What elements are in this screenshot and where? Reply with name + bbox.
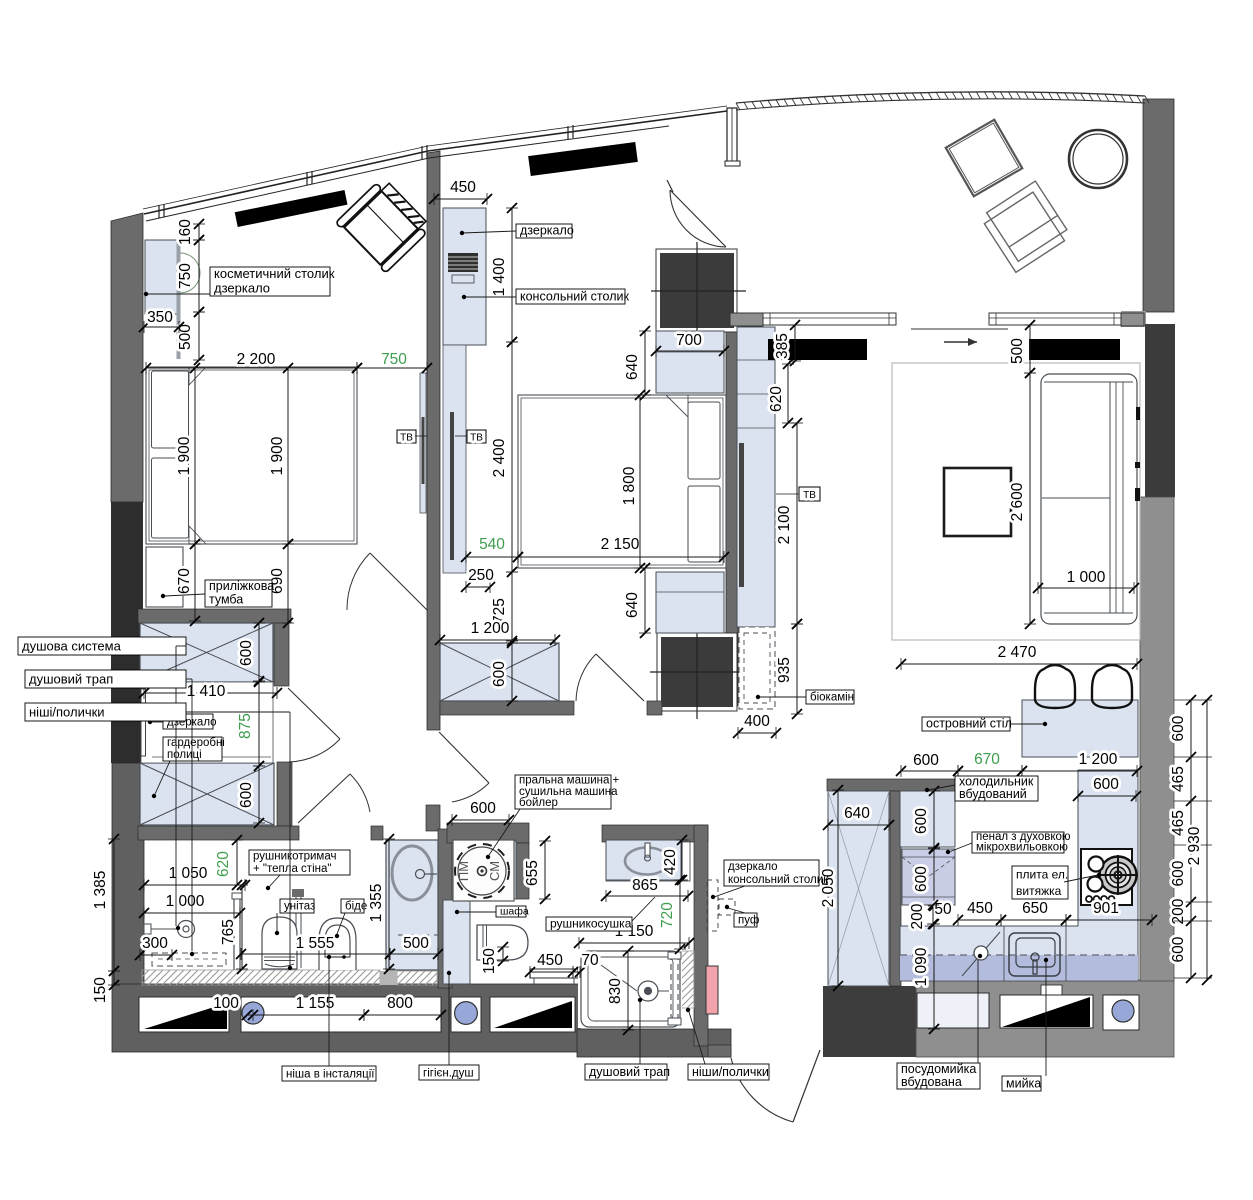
svg-text:1 900: 1 900 bbox=[269, 436, 286, 475]
svg-text:1 200: 1 200 bbox=[1079, 751, 1118, 768]
svg-text:косметичний столик: косметичний столик bbox=[214, 266, 335, 281]
svg-text:450: 450 bbox=[450, 179, 476, 196]
svg-text:витяжка: витяжка bbox=[1016, 884, 1062, 898]
svg-text:мийка: мийка bbox=[1006, 1076, 1041, 1090]
svg-text:500: 500 bbox=[1009, 338, 1026, 364]
svg-text:ТВ: ТВ bbox=[470, 433, 483, 444]
svg-text:ніши/полички: ніши/полички bbox=[692, 1065, 769, 1079]
svg-text:1 200: 1 200 bbox=[471, 620, 510, 637]
svg-text:420: 420 bbox=[662, 849, 679, 875]
svg-text:1 000: 1 000 bbox=[166, 893, 205, 910]
svg-text:1 000: 1 000 bbox=[1067, 569, 1106, 586]
svg-text:мікрохвильовкою: мікрохвильовкою bbox=[976, 841, 1068, 853]
svg-text:670: 670 bbox=[176, 568, 193, 594]
svg-text:800: 800 bbox=[387, 995, 413, 1012]
svg-text:2 200: 2 200 bbox=[237, 351, 276, 368]
svg-text:160: 160 bbox=[177, 219, 194, 245]
svg-text:дзеркало: дзеркало bbox=[214, 280, 270, 295]
svg-text:350: 350 bbox=[147, 309, 173, 326]
svg-text:465: 465 bbox=[1170, 766, 1187, 792]
svg-text:вбудований: вбудований bbox=[959, 787, 1027, 801]
svg-text:600: 600 bbox=[238, 640, 255, 666]
svg-text:150: 150 bbox=[92, 977, 109, 1003]
svg-text:дзеркало: дзеркало bbox=[728, 861, 778, 873]
svg-text:935: 935 bbox=[776, 657, 793, 683]
svg-text:1 385: 1 385 bbox=[92, 871, 109, 910]
svg-text:1 900: 1 900 bbox=[176, 436, 193, 475]
svg-text:рушникотримач: рушникотримач bbox=[253, 850, 336, 862]
svg-text:ТВ: ТВ bbox=[400, 433, 413, 444]
svg-text:2 150: 2 150 bbox=[601, 536, 640, 553]
svg-text:600: 600 bbox=[470, 800, 496, 817]
svg-text:2 100: 2 100 bbox=[776, 505, 793, 544]
svg-text:консольний столик: консольний столик bbox=[520, 289, 629, 303]
svg-text:ПМ: ПМ bbox=[456, 861, 471, 881]
svg-text:901: 901 bbox=[1093, 900, 1119, 917]
svg-text:720: 720 bbox=[659, 902, 676, 928]
svg-text:плита ел.: плита ел. bbox=[1016, 867, 1068, 881]
svg-text:ніша в інсталяції: ніша в інсталяції bbox=[286, 1068, 375, 1080]
svg-text:2 400: 2 400 bbox=[491, 438, 508, 477]
svg-text:шафа: шафа bbox=[500, 905, 529, 917]
svg-text:865: 865 bbox=[632, 877, 658, 894]
svg-text:біде: біде bbox=[345, 901, 367, 913]
svg-text:вбудована: вбудована bbox=[901, 1075, 962, 1089]
svg-text:ТВ: ТВ bbox=[803, 490, 816, 501]
svg-text:посудомийка: посудомийка bbox=[901, 1062, 976, 1076]
svg-text:пральна машина +: пральна машина + bbox=[519, 775, 620, 787]
svg-text:600: 600 bbox=[1170, 936, 1187, 962]
svg-text:рушникосушка: рушникосушка bbox=[550, 917, 632, 931]
svg-text:+ "тепла стіна": + "тепла стіна" bbox=[253, 863, 331, 875]
svg-text:300: 300 bbox=[142, 935, 168, 952]
svg-text:600: 600 bbox=[1170, 860, 1187, 886]
svg-text:700: 700 bbox=[676, 332, 702, 349]
svg-text:унітаз: унітаз bbox=[284, 901, 315, 913]
svg-text:600: 600 bbox=[913, 752, 939, 769]
svg-text:600: 600 bbox=[1170, 715, 1187, 741]
svg-text:гігієн.душ: гігієн.душ bbox=[423, 1067, 474, 1079]
svg-text:приліжкова: приліжкова bbox=[209, 579, 274, 593]
svg-text:750: 750 bbox=[177, 263, 194, 289]
svg-text:640: 640 bbox=[624, 354, 641, 380]
svg-text:пуф: пуф bbox=[738, 915, 759, 927]
svg-text:465: 465 bbox=[1170, 810, 1187, 836]
svg-text:150: 150 bbox=[481, 948, 498, 974]
svg-text:2 470: 2 470 bbox=[998, 644, 1037, 661]
svg-text:670: 670 bbox=[974, 751, 1000, 768]
svg-text:консольний столик: консольний столик bbox=[728, 874, 829, 886]
svg-text:100: 100 bbox=[213, 995, 239, 1012]
svg-text:1 400: 1 400 bbox=[491, 257, 508, 296]
svg-text:400: 400 bbox=[744, 713, 770, 730]
svg-text:душовий трап: душовий трап bbox=[29, 672, 113, 687]
svg-text:бойлер: бойлер bbox=[519, 797, 558, 809]
svg-text:750: 750 bbox=[381, 351, 407, 368]
svg-text:1 050: 1 050 bbox=[169, 865, 208, 882]
svg-text:450: 450 bbox=[967, 900, 993, 917]
svg-text:СМ: СМ bbox=[487, 861, 502, 881]
svg-text:островний стіл: островний стіл bbox=[926, 717, 1012, 731]
svg-text:1 355: 1 355 bbox=[368, 884, 385, 923]
svg-text:600: 600 bbox=[238, 782, 255, 808]
svg-text:душовий трап: душовий трап bbox=[589, 1065, 670, 1079]
svg-text:1 410: 1 410 bbox=[187, 683, 226, 700]
svg-text:2 930: 2 930 bbox=[1186, 826, 1203, 865]
svg-text:полиці: полиці bbox=[167, 749, 202, 761]
svg-text:385: 385 bbox=[774, 333, 791, 359]
svg-text:600: 600 bbox=[913, 808, 930, 834]
svg-text:540: 540 bbox=[479, 536, 505, 553]
svg-text:600: 600 bbox=[1093, 776, 1119, 793]
svg-text:600: 600 bbox=[913, 866, 930, 892]
svg-text:640: 640 bbox=[624, 592, 641, 618]
svg-text:тумба: тумба bbox=[209, 593, 243, 607]
svg-text:дзеркало: дзеркало bbox=[520, 224, 574, 238]
svg-text:250: 250 bbox=[468, 567, 494, 584]
svg-text:650: 650 bbox=[1022, 900, 1048, 917]
svg-text:500: 500 bbox=[403, 935, 429, 952]
svg-text:620: 620 bbox=[768, 386, 785, 412]
svg-text:655: 655 bbox=[524, 860, 541, 886]
svg-text:200: 200 bbox=[1170, 898, 1187, 924]
svg-text:біокамін: біокамін bbox=[810, 692, 854, 704]
svg-text:875: 875 bbox=[237, 713, 254, 739]
svg-text:сушильна машина: сушильна машина bbox=[519, 786, 618, 798]
svg-text:620: 620 bbox=[215, 851, 232, 877]
svg-text:70: 70 bbox=[581, 952, 599, 969]
svg-text:765: 765 bbox=[220, 919, 237, 945]
svg-text:600: 600 bbox=[491, 661, 508, 687]
svg-text:450: 450 bbox=[537, 952, 563, 969]
svg-text:200: 200 bbox=[909, 903, 926, 929]
svg-text:640: 640 bbox=[844, 805, 870, 822]
svg-text:2 600: 2 600 bbox=[1009, 482, 1026, 521]
svg-text:душова система: душова система bbox=[22, 639, 122, 654]
svg-text:830: 830 bbox=[607, 978, 624, 1004]
svg-text:1 800: 1 800 bbox=[621, 466, 638, 505]
svg-text:1 555: 1 555 bbox=[296, 935, 335, 952]
svg-text:ніші/полички: ніші/полички bbox=[29, 705, 105, 720]
svg-text:50: 50 bbox=[934, 901, 952, 918]
svg-text:1 090: 1 090 bbox=[913, 947, 930, 986]
